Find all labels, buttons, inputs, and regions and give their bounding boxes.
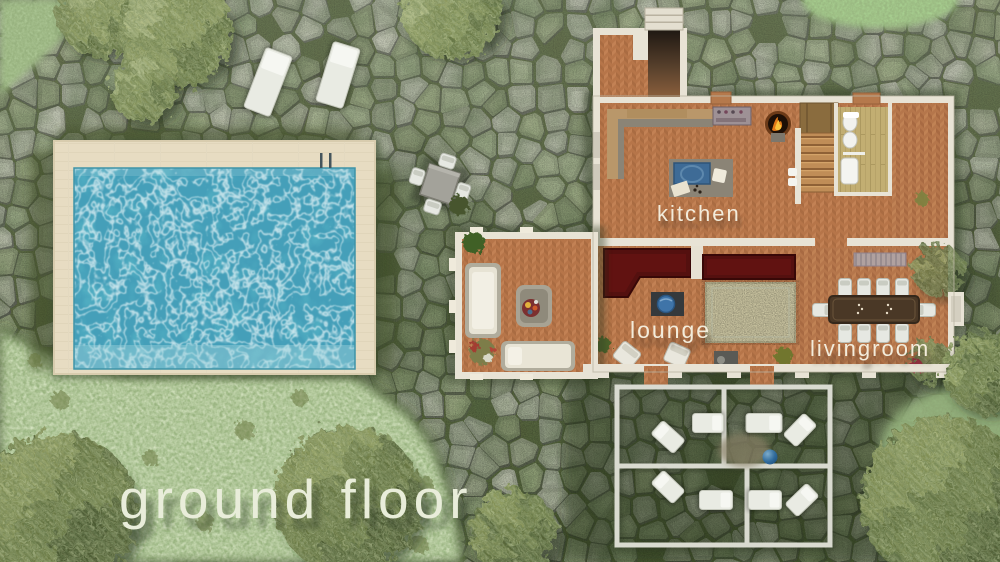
svg-text:ground floor: ground floor bbox=[119, 468, 473, 530]
svg-text:lounge: lounge bbox=[630, 317, 711, 343]
svg-text:kitchen: kitchen bbox=[657, 201, 741, 226]
svg-text:livingroom: livingroom bbox=[810, 336, 930, 361]
